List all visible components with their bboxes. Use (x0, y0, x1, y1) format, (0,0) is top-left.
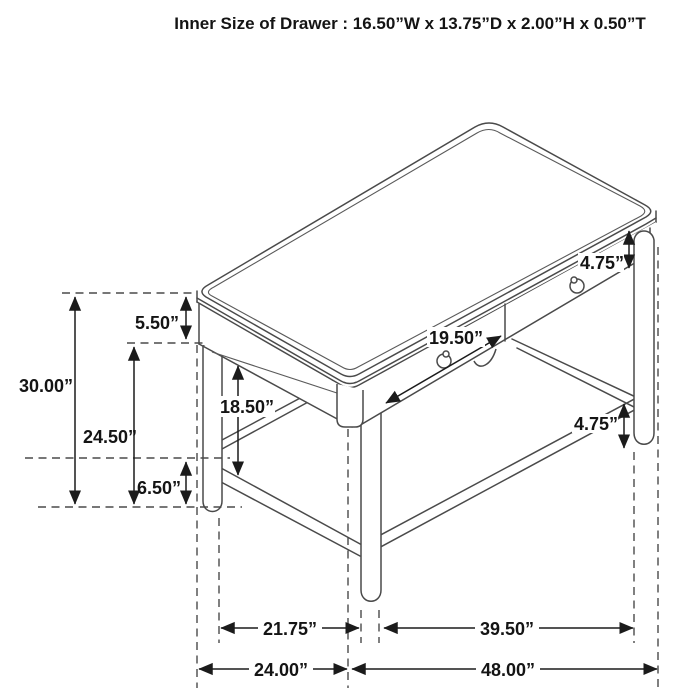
back-left-leg (203, 344, 222, 512)
dim-knee-clearance: 18.50” (219, 366, 275, 475)
dim-top-to-apron: 5.50” (135, 297, 186, 339)
dimension-label-stretcher-to-leg-end: 4.75” (574, 414, 618, 434)
dimension-label-overall-width: 48.00” (481, 660, 535, 680)
front-right-leg (634, 231, 654, 444)
dim-overall-width: 48.00” (352, 658, 657, 680)
dimension-label-side-leg-spacing: 21.75” (263, 619, 317, 639)
corner-post (337, 384, 363, 427)
dim-apron-to-floor: 24.50” (83, 347, 137, 504)
dimension-label-knee-clearance: 18.50” (220, 397, 274, 417)
dim-stretcher-to-leg-end: 4.75” (572, 404, 624, 448)
dim-overall-height: 30.00” (19, 297, 75, 504)
desk-dimension-drawing: Inner Size of Drawer : 16.50”W x 13.75”D… (0, 0, 700, 700)
dimension-label-overall-height: 30.00” (19, 376, 73, 396)
dim-side-leg-spacing: 21.75” (221, 617, 359, 639)
dim-front-leg-spacing: 39.50” (384, 617, 633, 639)
dimension-label-drawer-face-height: 4.75” (580, 253, 624, 273)
dim-stretcher-to-floor: 6.50” (137, 462, 186, 504)
dimension-label-stretcher-to-floor: 6.50” (137, 478, 181, 498)
dim-overall-depth: 24.00” (199, 658, 347, 680)
dimension-label-front-leg-spacing: 39.50” (480, 619, 534, 639)
dimension-label-overall-depth: 24.00” (254, 660, 308, 680)
dimension-label-knee-opening: 19.50” (429, 328, 483, 348)
diagram-title: Inner Size of Drawer : 16.50”W x 13.75”D… (174, 14, 646, 33)
dimension-label-apron-to-floor: 24.50” (83, 427, 137, 447)
dimension-label-top-to-apron: 5.50” (135, 313, 179, 333)
dimension-diagram: Inner Size of Drawer : 16.50”W x 13.75”D… (0, 0, 700, 700)
desk-top (202, 123, 651, 377)
desk-drawing (197, 123, 656, 601)
